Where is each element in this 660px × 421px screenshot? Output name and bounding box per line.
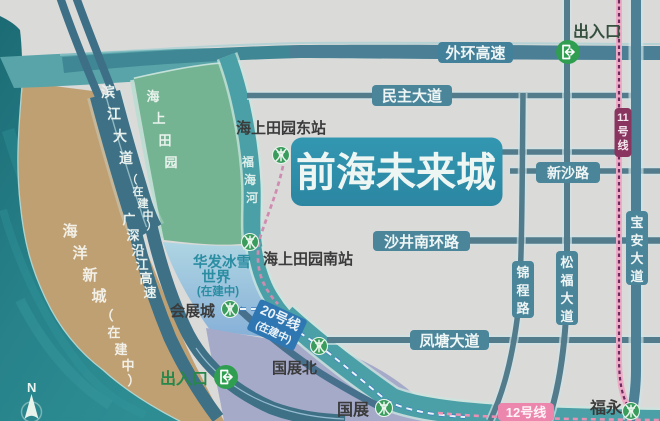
- svg-text:国展: 国展: [337, 401, 370, 419]
- svg-text:国展北: 国展北: [272, 360, 317, 377]
- svg-text:）: ）: [147, 219, 158, 232]
- svg-text:海上田园南站: 海上田园南站: [263, 250, 353, 268]
- svg-text:在: 在: [133, 184, 144, 198]
- svg-text:上: 上: [152, 111, 165, 126]
- svg-text:会展城: 会展城: [170, 302, 215, 320]
- svg-text:大: 大: [630, 251, 643, 266]
- svg-text:线: 线: [618, 138, 629, 152]
- svg-text:凤塘大道: 凤塘大道: [419, 332, 479, 350]
- svg-text:在: 在: [107, 325, 120, 340]
- svg-text:大: 大: [113, 128, 127, 144]
- svg-text:安: 安: [630, 233, 643, 248]
- svg-text:大: 大: [560, 291, 573, 306]
- svg-text:福永: 福永: [589, 398, 622, 417]
- svg-text:广: 广: [122, 212, 135, 227]
- svg-text:新: 新: [82, 266, 97, 284]
- svg-text:沙井南环路: 沙井南环路: [384, 233, 460, 251]
- svg-text:深: 深: [126, 228, 139, 243]
- svg-text:号: 号: [618, 125, 629, 138]
- svg-text:沿: 沿: [131, 243, 144, 258]
- svg-text:海: 海: [62, 222, 77, 240]
- svg-text:(在建中): (在建中): [197, 284, 239, 298]
- svg-text:建: 建: [114, 342, 127, 357]
- svg-text:宝: 宝: [630, 215, 643, 230]
- svg-text:洋: 洋: [72, 244, 87, 262]
- svg-text:外环高速: 外环高速: [444, 44, 505, 62]
- svg-text:海上田园东站: 海上田园东站: [236, 119, 326, 137]
- svg-text:福: 福: [559, 273, 573, 288]
- svg-text:（: （: [127, 173, 138, 186]
- svg-text:滨: 滨: [101, 84, 115, 100]
- svg-text:（: （: [100, 308, 113, 323]
- svg-text:出入口: 出入口: [160, 369, 208, 388]
- svg-text:前海未来城: 前海未来城: [296, 151, 496, 195]
- svg-text:中: 中: [121, 358, 134, 373]
- svg-text:江: 江: [107, 106, 121, 122]
- svg-text:江: 江: [135, 257, 148, 272]
- svg-text:）: ）: [127, 373, 140, 388]
- svg-text:华发冰雪: 华发冰雪: [193, 253, 251, 271]
- svg-text:锦: 锦: [516, 265, 529, 280]
- svg-text:高: 高: [139, 271, 152, 286]
- svg-text:世界: 世界: [202, 268, 231, 286]
- svg-text:城: 城: [91, 287, 106, 305]
- svg-text:11: 11: [617, 112, 629, 124]
- svg-text:海: 海: [244, 172, 256, 187]
- svg-text:道: 道: [630, 269, 643, 284]
- svg-text:建: 建: [138, 196, 150, 210]
- svg-text:新沙路: 新沙路: [547, 165, 590, 181]
- svg-text:N: N: [27, 380, 36, 395]
- svg-text:民主大道: 民主大道: [382, 87, 442, 105]
- svg-text:路: 路: [516, 301, 530, 316]
- svg-text:程: 程: [516, 283, 529, 298]
- svg-text:道: 道: [119, 150, 133, 166]
- svg-text:田: 田: [158, 133, 171, 148]
- svg-text:海: 海: [146, 89, 159, 104]
- svg-text:园: 园: [164, 155, 177, 170]
- svg-text:松: 松: [560, 255, 573, 270]
- svg-text:速: 速: [143, 285, 156, 300]
- svg-text:道: 道: [560, 309, 573, 324]
- svg-text:12号线: 12号线: [506, 405, 546, 420]
- svg-text:福: 福: [241, 154, 254, 169]
- svg-text:出入口: 出入口: [573, 22, 621, 41]
- svg-text:河: 河: [245, 190, 258, 205]
